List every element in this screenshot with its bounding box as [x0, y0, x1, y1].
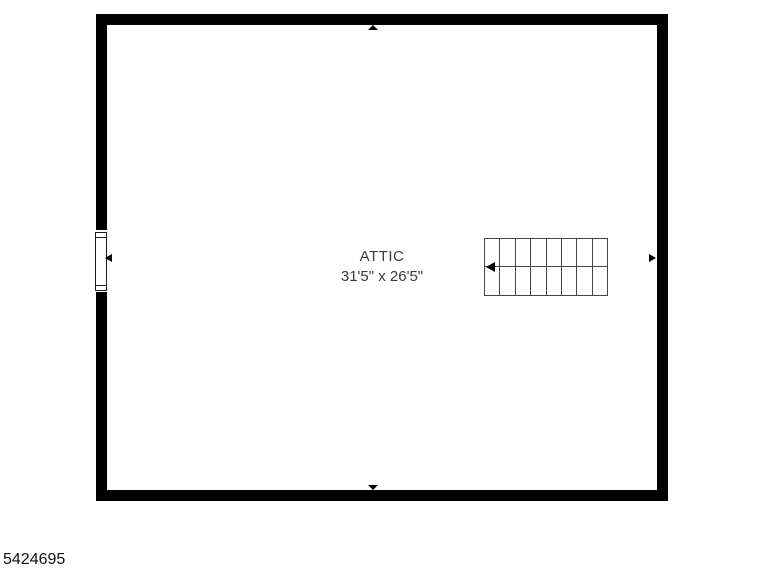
floorplan-canvas: ATTIC 31'5" x 26'5" 5424695 [0, 0, 768, 576]
room-name: ATTIC [182, 247, 582, 267]
wall-marker-left-icon [105, 254, 112, 262]
window-sill-bottom [96, 285, 106, 286]
wall-marker-bottom-icon [368, 485, 378, 490]
stair-step [593, 239, 607, 295]
room-dimensions: 31'5" x 26'5" [182, 267, 582, 287]
listing-id: 5424695 [3, 551, 65, 569]
window-sill-top [96, 237, 106, 238]
room-label-block: ATTIC 31'5" x 26'5" [182, 247, 582, 287]
wall-marker-right-icon [649, 254, 656, 262]
wall-marker-top-icon [368, 25, 378, 30]
